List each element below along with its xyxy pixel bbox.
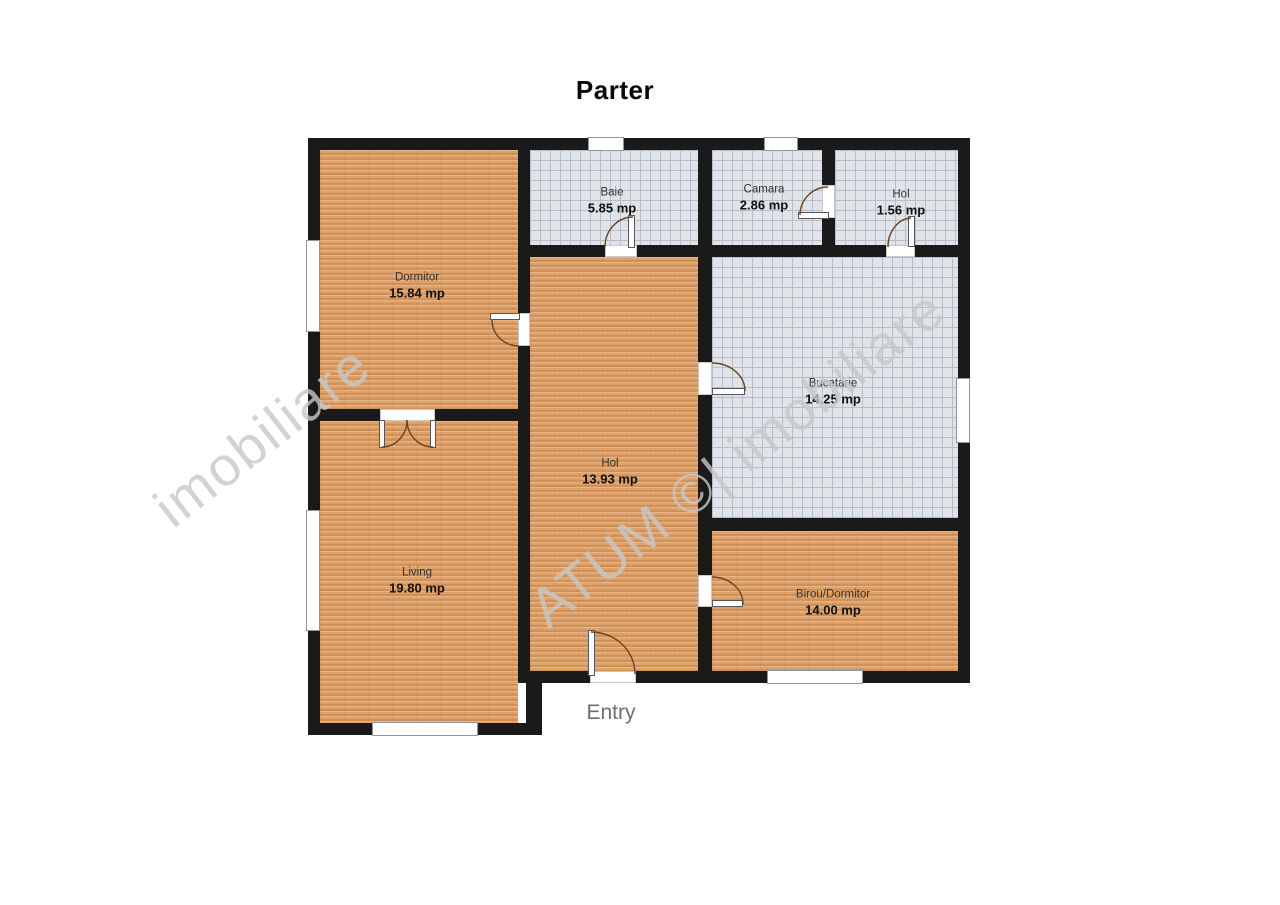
- room-name: Camara: [740, 184, 788, 196]
- room-area: 15.84 mp: [389, 286, 445, 301]
- door-birou-leaf: [712, 600, 743, 607]
- room-name: Hol: [877, 189, 925, 201]
- window-left-dormitor: [306, 240, 320, 332]
- window-top-camara: [764, 137, 798, 151]
- room-label-baie: Baie5.85 mp: [588, 187, 636, 216]
- entry-label: Entry: [586, 701, 635, 725]
- window-top-baie: [588, 137, 624, 151]
- room-area: 5.85 mp: [588, 201, 636, 216]
- room-label-birou: Birou/Dormitor14.00 mp: [796, 589, 870, 618]
- door-hol-mic-leaf: [908, 216, 915, 247]
- door-dormitor-leaf: [490, 313, 520, 320]
- door-entry-opening: [590, 671, 636, 683]
- wall-vert-baie-camara: [698, 138, 712, 257]
- floorplan: Dormitor15.84 mpBaie5.85 mpCamara2.86 mp…: [0, 0, 1280, 905]
- door-french-left-leaf: [379, 420, 385, 448]
- room-label-camara: Camara2.86 mp: [740, 184, 788, 213]
- window-left-living: [306, 510, 320, 631]
- room-label-hol: Hol13.93 mp: [582, 458, 638, 487]
- door-french-left-opening: [380, 409, 435, 421]
- window-bottom-living: [372, 722, 478, 736]
- room-area: 14.25 mp: [805, 392, 861, 407]
- room-area: 19.80 mp: [389, 581, 445, 596]
- room-name: Birou/Dormitor: [796, 589, 870, 601]
- wall-horiz-bucatarie-birou: [698, 518, 970, 531]
- window-bottom-birou: [767, 670, 863, 684]
- room-name: Dormitor: [389, 272, 445, 284]
- room-name: Living: [389, 567, 445, 579]
- plan-title: Parter: [415, 75, 815, 106]
- room-name: Baie: [588, 187, 636, 199]
- door-camara-leaf: [798, 212, 829, 219]
- door-french-right-leaf: [430, 420, 436, 448]
- wall-vert-hol-bucatarie: [698, 245, 712, 683]
- door-birou-opening: [698, 575, 712, 607]
- room-area: 1.56 mp: [877, 203, 925, 218]
- room-name: Hol: [582, 458, 638, 470]
- room-area: 2.86 mp: [740, 198, 788, 213]
- room-label-bucatarie: Bucatarie14.25 mp: [805, 378, 861, 407]
- room-label-hol-mic: Hol1.56 mp: [877, 189, 925, 218]
- room-label-dormitor: Dormitor15.84 mp: [389, 272, 445, 301]
- room-area: 14.00 mp: [796, 603, 870, 618]
- door-bucatarie-leaf: [712, 388, 745, 395]
- wall-horiz-hol-bottom: [518, 671, 970, 683]
- room-name: Bucatarie: [805, 378, 861, 390]
- room-area: 13.93 mp: [582, 472, 638, 487]
- wall-outer-left: [308, 138, 320, 735]
- door-bucatarie-opening: [698, 362, 712, 395]
- wall-outer-top: [308, 138, 970, 150]
- door-baie-leaf: [628, 215, 635, 248]
- window-right-bucatarie: [956, 378, 970, 443]
- wall-vert-step: [526, 671, 542, 735]
- floorplan-canvas: Parter Dormitor15.84 mpBaie5.85 mpCamara…: [0, 0, 1280, 905]
- door-entry-leaf: [588, 630, 595, 676]
- room-label-living: Living19.80 mp: [389, 567, 445, 596]
